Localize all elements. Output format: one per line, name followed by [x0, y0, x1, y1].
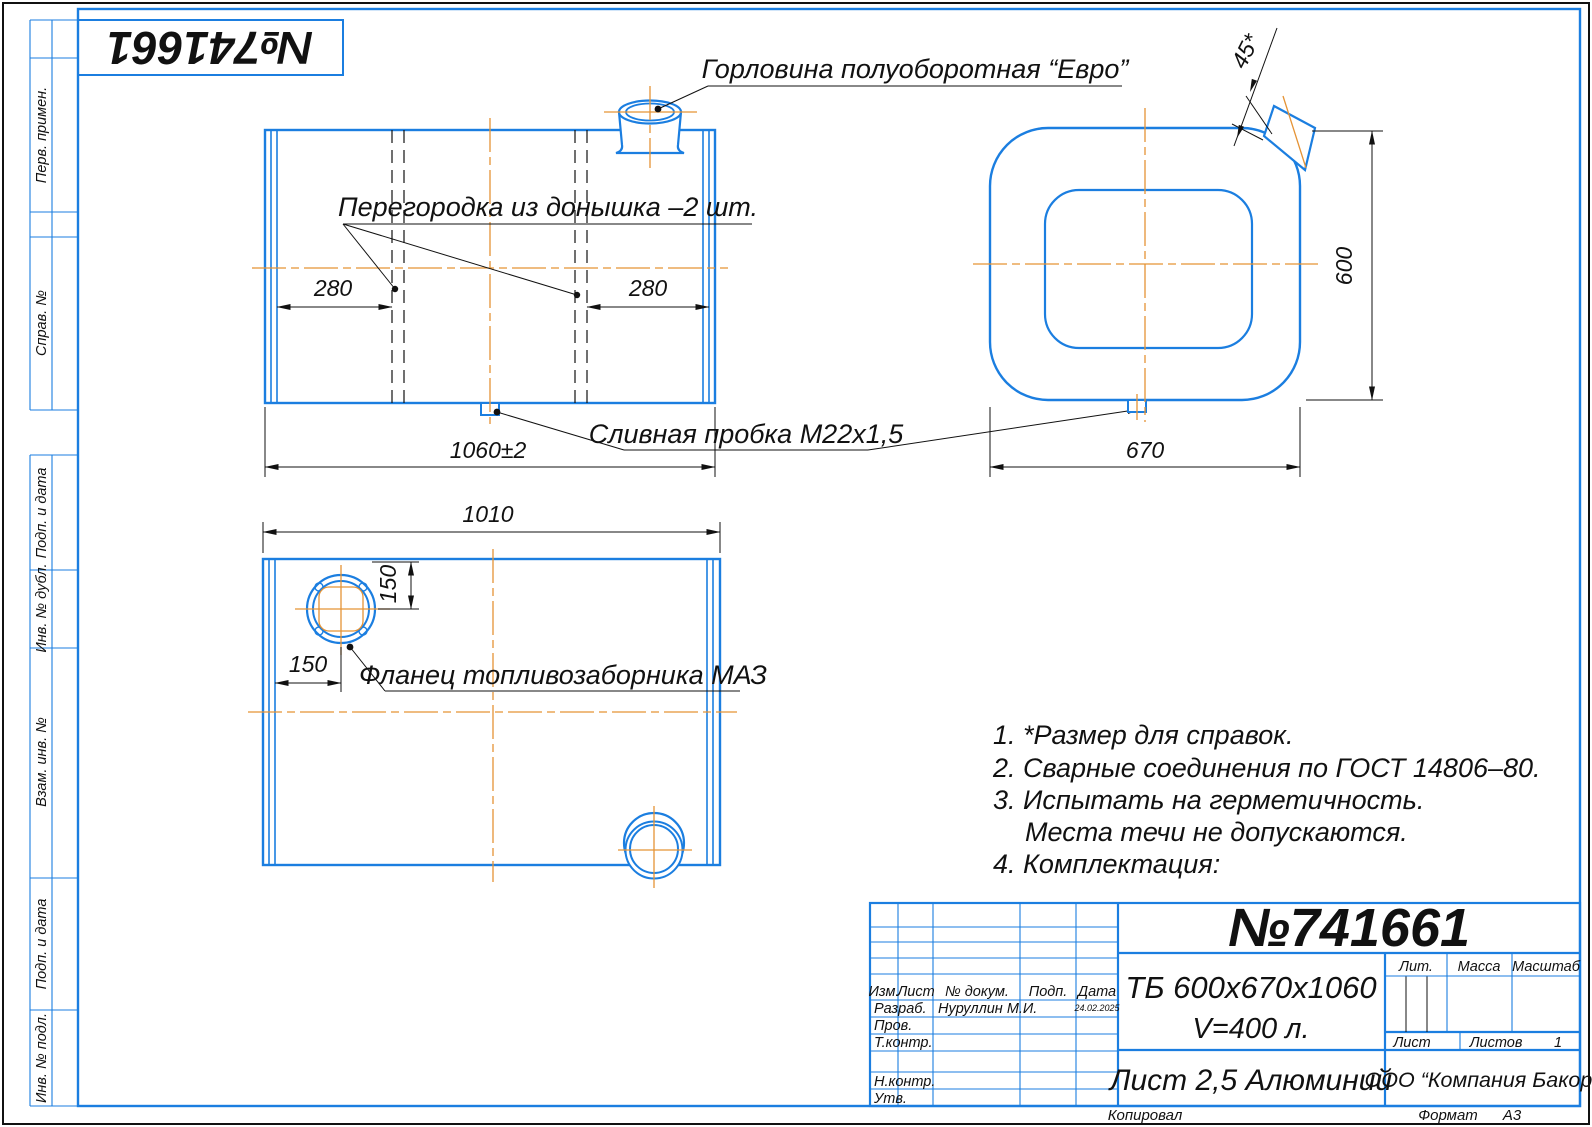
lit-header: Лит. — [1398, 959, 1433, 975]
designation: ТБ 600х670х1060 — [1125, 970, 1376, 1005]
col-podp: Подп. — [1029, 984, 1068, 1000]
dim-1060: 1060±2 — [450, 437, 527, 463]
scale-header: Масштаб — [1512, 959, 1581, 975]
note-4: 4. Комплектация: — [993, 849, 1220, 879]
col-data: Дата — [1076, 984, 1116, 1000]
row-utv: Утв. — [873, 1091, 907, 1107]
dim-280-left: 280 — [313, 275, 353, 301]
col-izm: Изм. — [869, 984, 900, 1000]
margin-label-vzam-inv: Взам. инв. № — [34, 717, 50, 807]
margin-label-perv-primen: Перв. примен. — [34, 87, 50, 183]
row-nkontr: Н.контр. — [874, 1074, 935, 1090]
margin-label-podp-data-2: Подп. и дата — [34, 899, 50, 990]
partition-label: Перегородка из донышка –2 шт. — [338, 192, 758, 222]
dim-600: 600 — [1331, 247, 1357, 286]
developer-name: Нуруллин М.И. — [938, 1001, 1037, 1017]
dim-280-right: 280 — [628, 275, 668, 301]
dim-1010: 1010 — [462, 501, 513, 527]
volume: V=400 л. — [1192, 1013, 1309, 1045]
sheets-label: Листов — [1469, 1035, 1523, 1051]
row-razrab: Разраб. — [874, 1001, 926, 1017]
row-tkontr: Т.контр. — [874, 1035, 933, 1051]
corner-stamp: №741661 — [78, 20, 343, 75]
drain-label: Сливная пробка М22х1,5 — [589, 419, 905, 449]
sheets-value: 1 — [1554, 1035, 1562, 1051]
dim-670: 670 — [1126, 437, 1165, 463]
corner-stamp-number: №741661 — [107, 22, 313, 74]
drawing-sheet: Перв. примен. Справ. № Подп. и дата Инв.… — [0, 0, 1592, 1127]
dim-150-vertical: 150 — [375, 565, 401, 604]
flange-label: Фланец топливозаборника МАЗ — [359, 660, 767, 690]
material: Лист 2,5 Алюминий — [1108, 1064, 1393, 1097]
row-prov: Пров. — [874, 1018, 912, 1034]
col-docnum: № докум. — [945, 984, 1009, 1000]
footer-format-value: А3 — [1502, 1107, 1522, 1124]
title-doc-number: №741661 — [1228, 898, 1470, 958]
col-list: Лист — [896, 984, 934, 1000]
footer-format-label: Формат — [1418, 1107, 1478, 1124]
margin-label-inv-podl: Инв. № подл. — [34, 1013, 50, 1103]
note-1: 1. *Размер для справок. — [993, 720, 1293, 750]
note-3: 3. Испытать на герметичность. — [993, 785, 1424, 815]
date-value: 24.02.2025 — [1073, 1003, 1120, 1013]
mass-header: Масса — [1458, 959, 1501, 975]
margin-label-inv-dubl: Инв. № дубл. — [34, 563, 50, 652]
sheet-label: Лист — [1392, 1035, 1430, 1051]
note-3b: Места течи не допускаются. — [1025, 817, 1408, 847]
company: ООО “Компания Бакор” — [1365, 1068, 1592, 1092]
neck-label: Горловина полуоборотная “Евро” — [702, 54, 1130, 84]
footer-copied: Копировал — [1108, 1107, 1183, 1124]
dim-150-horizontal: 150 — [289, 651, 328, 677]
margin-label-sprav: Справ. № — [34, 290, 50, 356]
engineering-drawing: Перв. примен. Справ. № Подп. и дата Инв.… — [0, 0, 1592, 1127]
note-2: 2. Сварные соединения по ГОСТ 14806–80. — [992, 753, 1541, 783]
margin-label-podp-data-1: Подп. и дата — [34, 468, 50, 559]
